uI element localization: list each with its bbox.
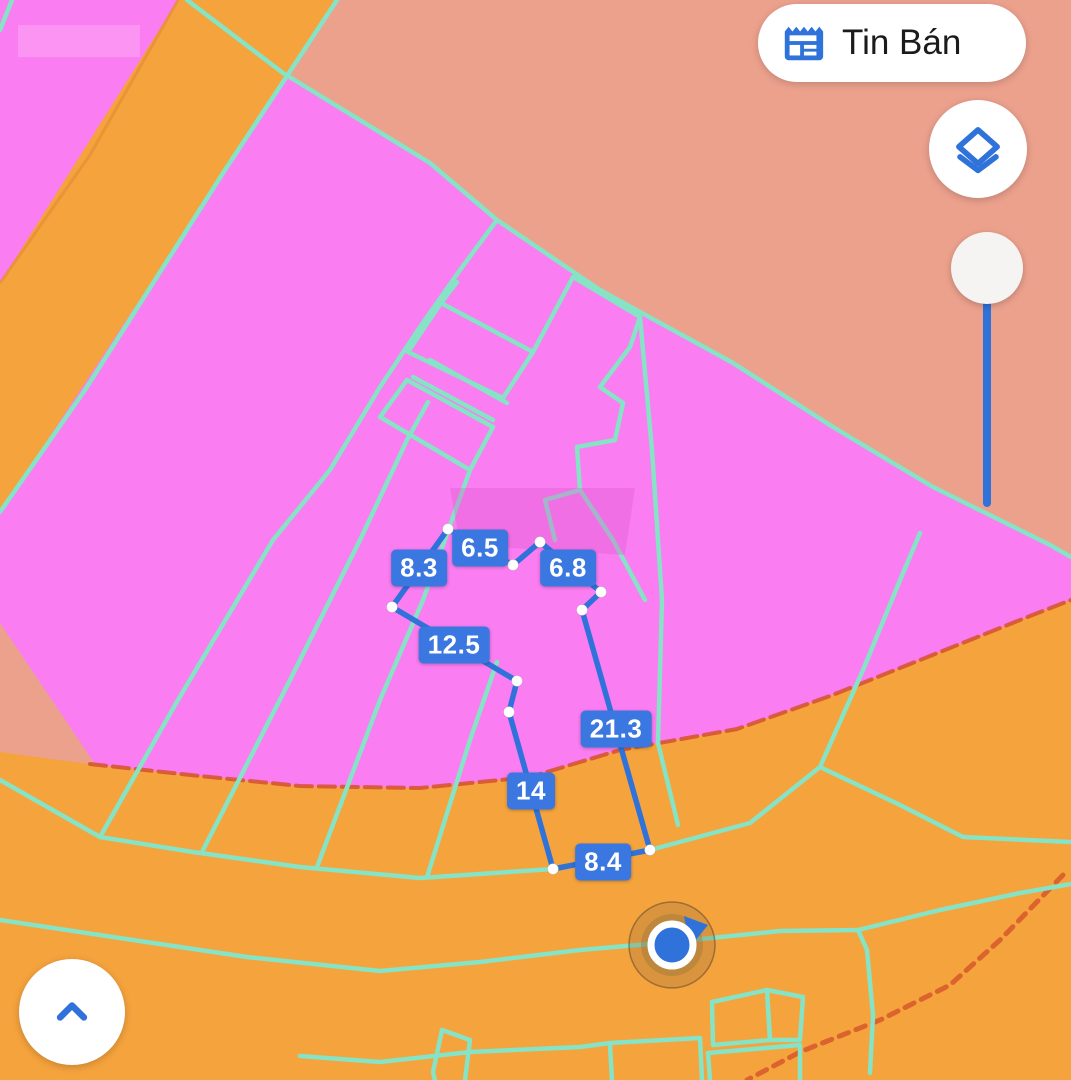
measurement-label: 8.4 — [575, 844, 631, 881]
chevron-up-icon — [46, 986, 98, 1038]
measurement-label: 6.5 — [452, 530, 508, 567]
map-canvas[interactable] — [0, 0, 1071, 1080]
listings-button-label: Tin Bán — [842, 23, 961, 63]
measure-vertex[interactable] — [596, 587, 607, 598]
map-app-screen: 6.5 8.3 6.8 12.5 21.3 14 8.4 Tin Bán — [0, 0, 1071, 1080]
measure-vertex[interactable] — [577, 605, 588, 616]
watermark-strip — [18, 25, 140, 57]
layers-button[interactable] — [929, 100, 1027, 198]
measurement-label: 8.3 — [391, 550, 447, 587]
measure-vertex[interactable] — [387, 602, 398, 613]
listings-button[interactable]: Tin Bán — [758, 4, 1026, 82]
measure-vertex[interactable] — [548, 864, 559, 875]
measurement-label: 6.8 — [540, 550, 596, 587]
zoom-slider-knob[interactable] — [951, 232, 1023, 304]
measure-vertex[interactable] — [508, 560, 519, 571]
measurement-label: 21.3 — [581, 711, 652, 748]
layers-icon — [951, 122, 1005, 176]
measure-vertex[interactable] — [512, 676, 523, 687]
zoom-slider-track[interactable] — [983, 300, 991, 507]
expand-panel-button[interactable] — [19, 959, 125, 1065]
measurement-label: 12.5 — [419, 627, 490, 664]
measure-vertex[interactable] — [535, 537, 546, 548]
measure-vertex[interactable] — [504, 707, 515, 718]
news-icon — [780, 20, 826, 66]
current-location-marker — [629, 902, 715, 988]
measure-vertex[interactable] — [645, 845, 656, 856]
measurement-label: 14 — [507, 773, 555, 810]
